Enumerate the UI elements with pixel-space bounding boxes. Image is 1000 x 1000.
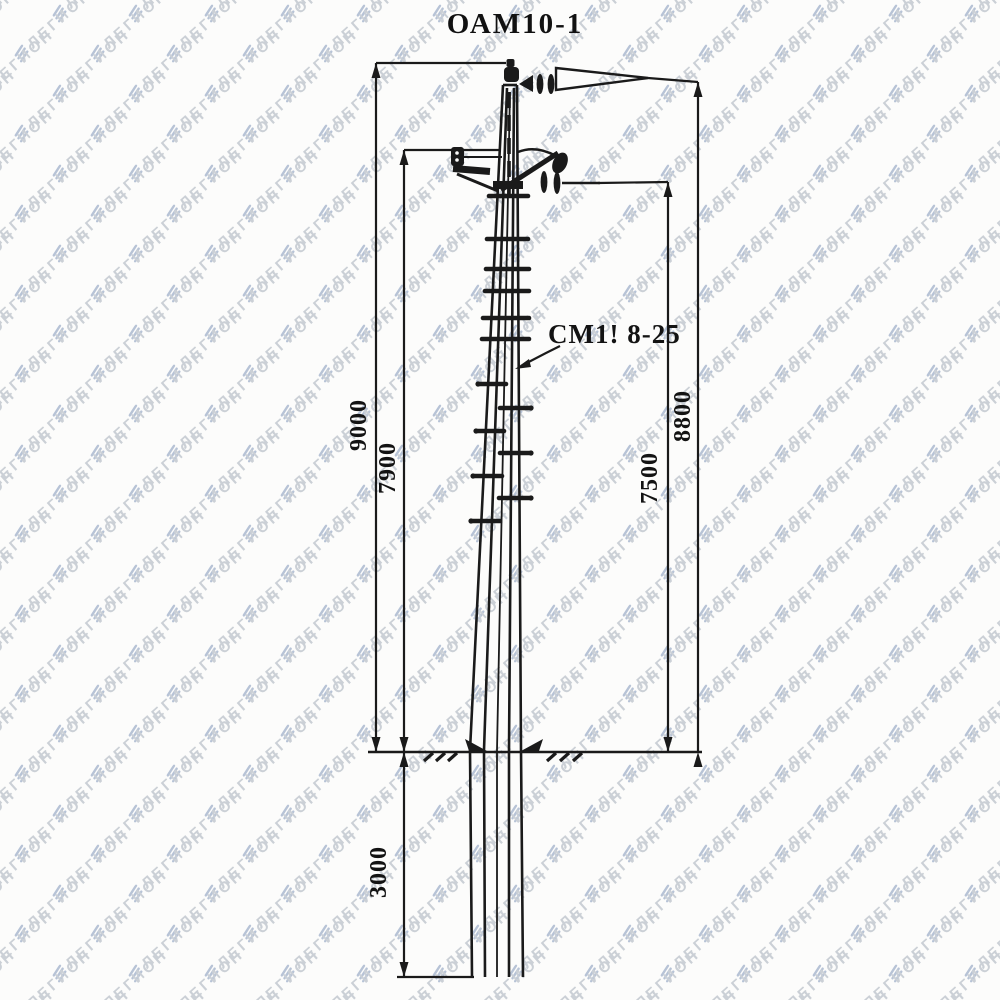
pole — [468, 85, 533, 977]
dimension-arrowheads — [372, 63, 703, 977]
dim-total-height-label: 9000 — [346, 399, 372, 451]
soil-hatch-ticks — [424, 753, 582, 761]
top-pin-insulator — [504, 59, 519, 82]
extension-lines — [376, 63, 698, 977]
ground-line — [368, 739, 702, 761]
ground-arrowheads — [465, 739, 543, 751]
dimension-lines — [372, 63, 703, 977]
top-wire-assembly — [519, 68, 648, 94]
pole-lines — [470, 85, 523, 977]
pole-technical-drawing: ОАМ10-1 СМ1! 8-25 9000 7900 7500 8800 30… — [0, 0, 1000, 1000]
dim-upper-wire-label: 8800 — [670, 390, 696, 442]
part-label: СМ1! 8-25 — [548, 319, 681, 349]
drawing-title: ОАМ10-1 — [447, 8, 584, 40]
dim-lower-crossarm-label: 7900 — [375, 442, 401, 494]
scanned-pole-drawing-page: ЛЕГИОНЛЕГИОНЛЕГИОНЛЕГИОНЛЕГИОНЛЕГИОНЛЕГИ… — [0, 0, 1000, 1000]
crossarm-assembly — [451, 147, 600, 194]
part-label-leader — [515, 346, 560, 369]
dim-lower-wire-label: 7500 — [637, 452, 663, 504]
dim-buried-depth-label: 3000 — [366, 846, 392, 898]
